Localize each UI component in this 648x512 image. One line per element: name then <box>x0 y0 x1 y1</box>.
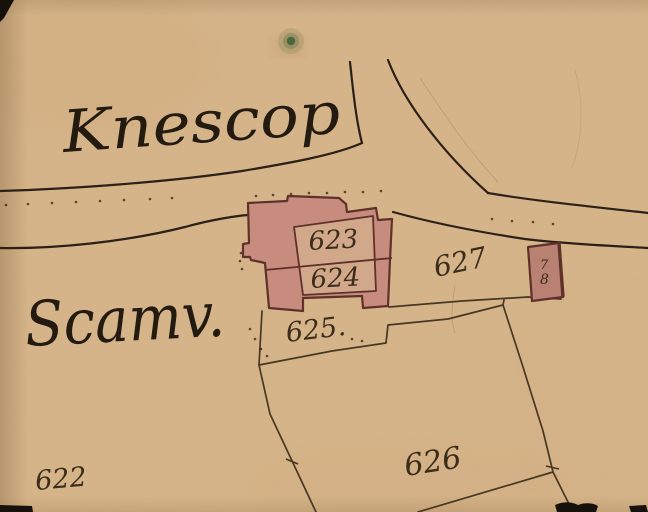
scan-mark-bottom-right <box>629 505 648 512</box>
place-name-scam: Scamv. <box>23 278 227 361</box>
small-building-number-top: 7 <box>540 258 549 273</box>
parcel-number-622: 622 <box>34 462 88 497</box>
small-building-number-bottom: 8 <box>540 272 549 288</box>
cadastral-map: Knescop Scamv. 623 624 625. 626 627 622 … <box>0 0 648 512</box>
tree-symbol <box>278 28 304 54</box>
parcel-number-624: 624 <box>310 262 361 295</box>
parcel-number-623: 623 <box>308 224 359 257</box>
scan-mark-bottom-left <box>0 505 33 512</box>
cadastral-map-screenshot: Knescop Scamv. 623 624 625. 626 627 622 … <box>0 0 648 512</box>
